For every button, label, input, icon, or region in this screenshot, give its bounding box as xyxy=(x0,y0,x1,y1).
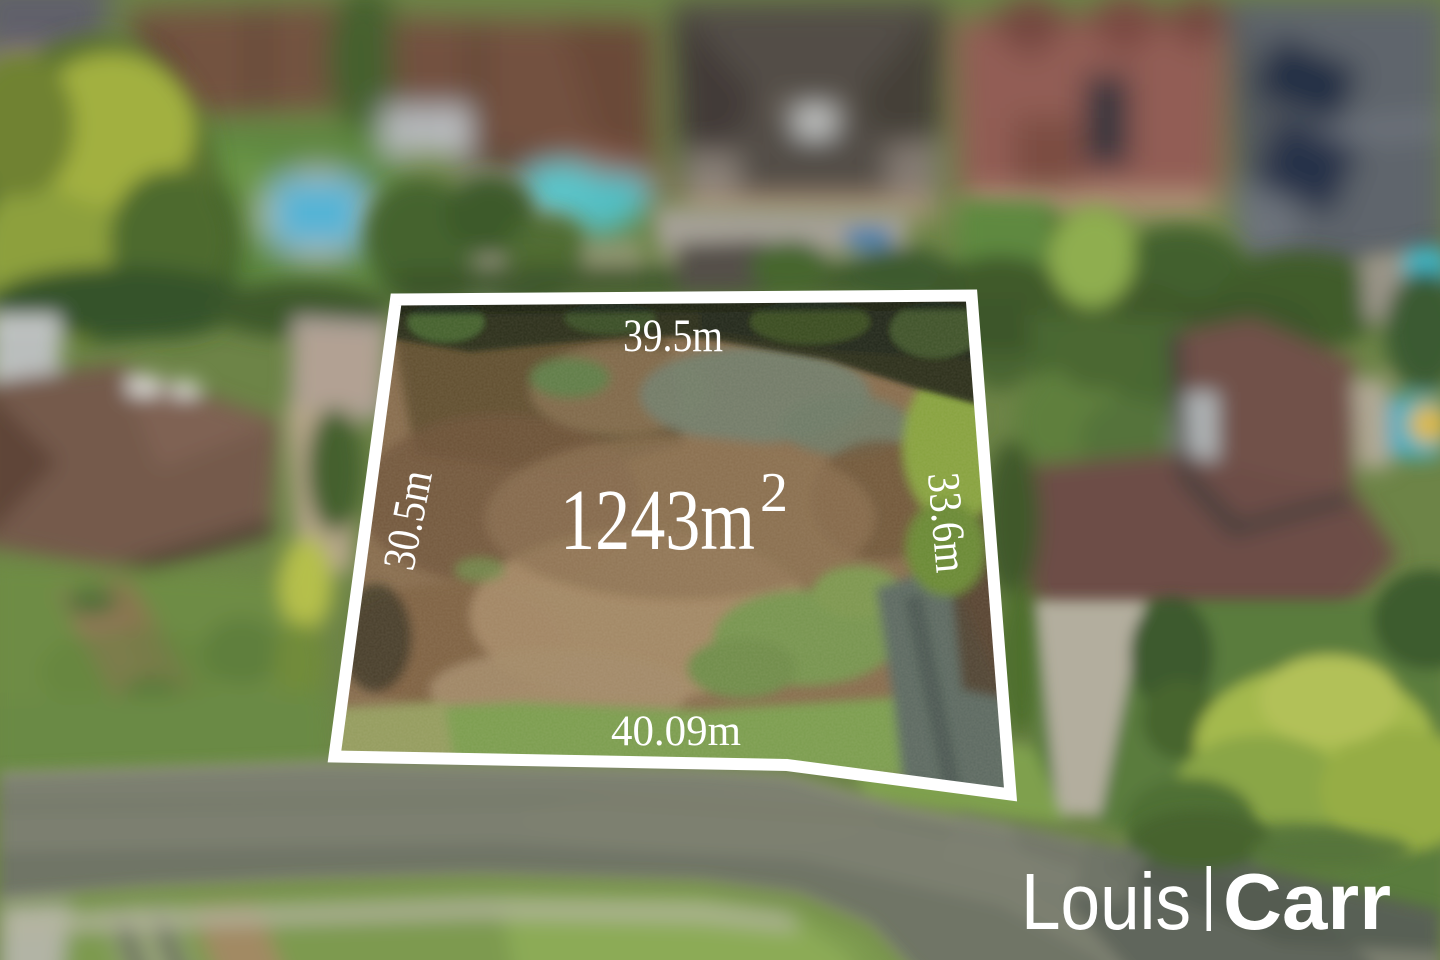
svg-text:33.6m: 33.6m xyxy=(918,470,978,574)
svg-text:39.5m: 39.5m xyxy=(623,310,723,362)
svg-text:Carr: Carr xyxy=(1223,857,1391,946)
svg-text:2: 2 xyxy=(760,462,788,524)
svg-text:Louis: Louis xyxy=(1021,857,1191,946)
svg-text:1243m: 1243m xyxy=(560,471,755,568)
svg-text:40.09m: 40.09m xyxy=(611,708,741,755)
